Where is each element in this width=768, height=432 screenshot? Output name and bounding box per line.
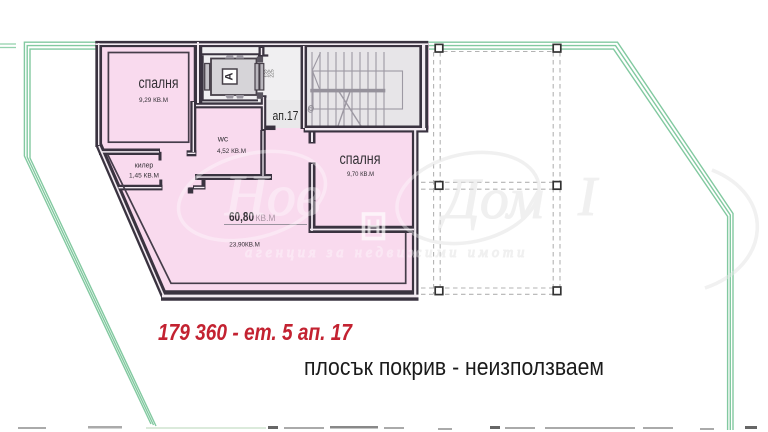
svg-text:H: H — [366, 217, 380, 239]
svg-text:спалня: спалня — [340, 151, 381, 168]
svg-text:wc: wc — [217, 133, 229, 143]
svg-text:ап.17: ап.17 — [273, 108, 299, 123]
svg-text:179 360 - ет. 5 ап. 17: 179 360 - ет. 5 ап. 17 — [158, 319, 353, 345]
svg-text:A: A — [224, 72, 236, 80]
svg-text:спалня: спалня — [139, 75, 179, 92]
svg-text:9,70 КВ.М: 9,70 КВ.М — [347, 171, 374, 178]
svg-text:9,29 КВ.М: 9,29 КВ.М — [139, 97, 168, 104]
svg-text:плосък покрив - неизползваем: плосък покрив - неизползваем — [304, 354, 604, 381]
svg-text:225: 225 — [269, 69, 275, 78]
svg-text:1,45 КВ.М: 1,45 КВ.М — [129, 173, 159, 180]
svg-text:килер: килер — [135, 163, 154, 170]
